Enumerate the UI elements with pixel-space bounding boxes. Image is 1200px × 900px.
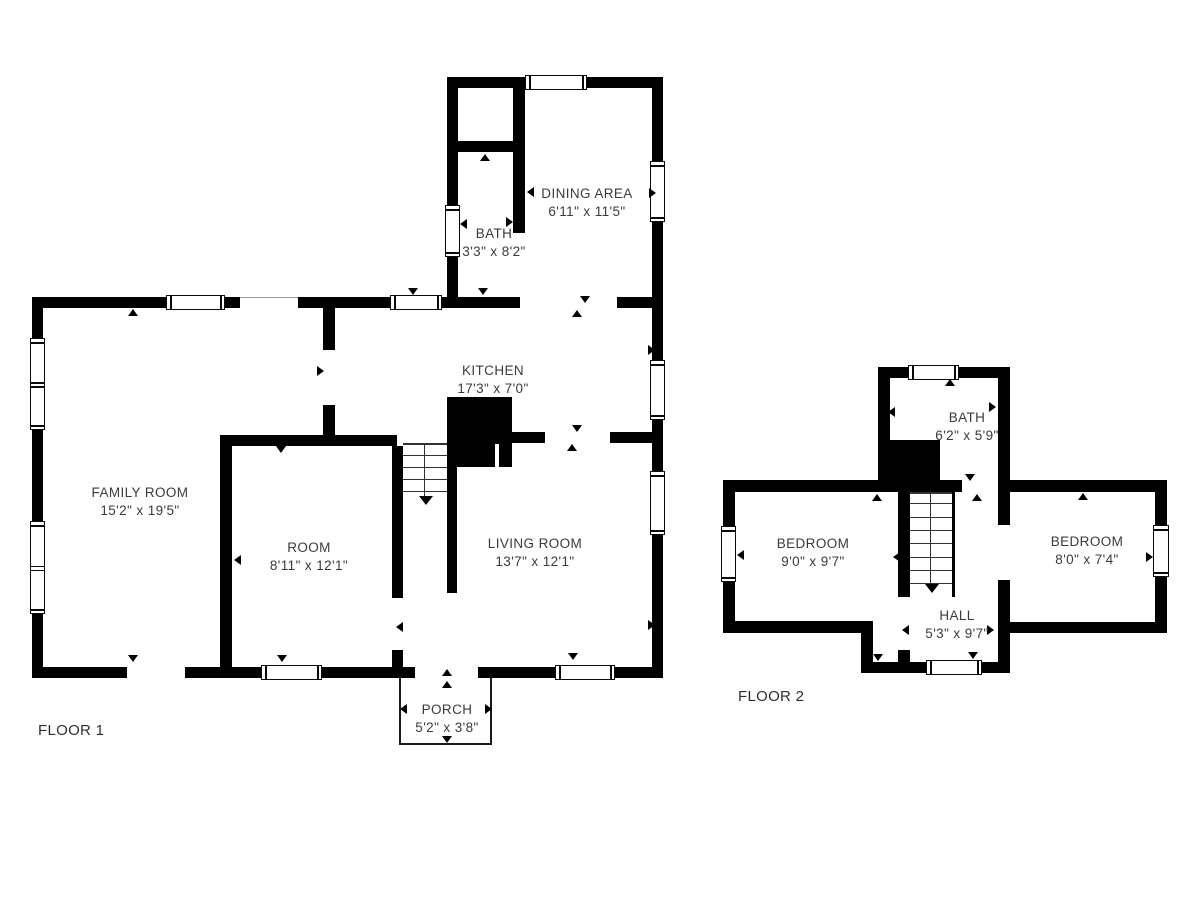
- room-dimensions: 3'3" x 8'2": [462, 243, 525, 261]
- door-direction-arrow: [396, 622, 403, 632]
- wall: [220, 446, 232, 667]
- window-mullion: [651, 415, 664, 417]
- window-mullion: [31, 525, 44, 527]
- room-label-bedroom-right: BEDROOM8'0" x 7'4": [1051, 533, 1124, 569]
- wall: [499, 444, 512, 467]
- window: [721, 526, 736, 582]
- window-mullion: [31, 566, 44, 568]
- room-name: KITCHEN: [462, 363, 524, 378]
- window-mullion: [31, 609, 44, 611]
- window-mullion: [930, 661, 932, 674]
- window-mullion: [977, 661, 979, 674]
- door-direction-arrow: [925, 584, 939, 593]
- window: [525, 75, 587, 90]
- window-mullion: [722, 530, 735, 532]
- door-direction-arrow: [649, 188, 656, 198]
- wall: [861, 662, 928, 673]
- room-name: BATH: [476, 226, 513, 241]
- door-direction-arrow: [893, 552, 900, 562]
- wall: [998, 480, 1167, 492]
- door-direction-arrow: [568, 653, 578, 660]
- door-direction-arrow: [872, 494, 882, 501]
- door-direction-arrow: [128, 655, 138, 662]
- wall: [1010, 622, 1167, 633]
- door-direction-arrow: [965, 474, 975, 481]
- room-name: BEDROOM: [1051, 534, 1124, 549]
- room-dimensions: 8'11" x 12'1": [270, 557, 348, 575]
- door-direction-arrow: [572, 310, 582, 317]
- room-label-living-room: LIVING ROOM13'7" x 12'1": [488, 535, 582, 571]
- wall: [723, 621, 873, 633]
- window: [650, 471, 665, 535]
- door-direction-arrow: [648, 345, 655, 355]
- window-mullion: [265, 666, 267, 679]
- wall: [458, 141, 513, 152]
- window-mullion: [722, 577, 735, 579]
- window: [390, 295, 442, 310]
- door-direction-arrow: [968, 652, 978, 659]
- window: [926, 660, 982, 675]
- window-mullion: [651, 165, 664, 167]
- wall: [512, 432, 545, 443]
- door-direction-arrow: [442, 681, 452, 688]
- door-direction-arrow: [902, 625, 909, 635]
- window-mullion: [317, 666, 319, 679]
- window-mullion: [651, 530, 664, 532]
- door-direction-arrow: [419, 496, 433, 505]
- window-mullion: [912, 366, 914, 379]
- wall: [392, 446, 403, 598]
- door-direction-arrow: [737, 550, 744, 560]
- window-mullion: [437, 296, 439, 309]
- window-mullion: [1154, 529, 1168, 531]
- opening-threshold: [240, 297, 298, 298]
- wall: [320, 667, 415, 678]
- wall: [723, 480, 962, 492]
- floor2-title: FLOOR 2: [738, 688, 804, 705]
- wall: [185, 667, 263, 678]
- door-direction-arrow: [567, 444, 577, 451]
- wall: [323, 308, 335, 350]
- window-mullion: [651, 217, 664, 219]
- room-dimensions: 13'7" x 12'1": [488, 553, 582, 571]
- window-mullion: [446, 252, 459, 254]
- room-name: HALL: [939, 608, 974, 623]
- room-dimensions: 5'2" x 3'8": [415, 719, 478, 737]
- wall: [447, 397, 512, 444]
- door-direction-arrow: [580, 296, 590, 303]
- wall: [447, 444, 457, 593]
- window-mullion: [31, 570, 44, 572]
- wall: [32, 297, 168, 308]
- window-mullion: [31, 342, 44, 344]
- window-mullion: [220, 296, 222, 309]
- room-label-bedroom-left: BEDROOM9'0" x 9'7": [777, 535, 850, 571]
- window-mullion: [559, 666, 561, 679]
- floor-plan-canvas: FLOOR 1 FLOOR 2 FAMILY ROOM15'2" x 19'5"…: [0, 0, 1200, 900]
- door-direction-arrow: [400, 704, 407, 714]
- wall: [898, 492, 910, 597]
- room-dimensions: 9'0" x 9'7": [777, 553, 850, 571]
- staircase-floor1-tread: [424, 443, 425, 496]
- room-label-kitchen: KITCHEN17'3" x 7'0": [457, 362, 528, 398]
- room-dimensions: 5'3" x 9'7": [925, 625, 988, 643]
- room-name: DINING AREA: [541, 186, 632, 201]
- wall: [617, 297, 663, 308]
- wall: [952, 492, 955, 597]
- door-direction-arrow: [276, 446, 286, 453]
- floor1-title: FLOOR 1: [38, 722, 104, 739]
- room-dimensions: 8'0" x 7'4": [1051, 551, 1124, 569]
- wall: [998, 580, 1010, 673]
- room-label-family-room: FAMILY ROOM15'2" x 19'5": [92, 484, 189, 520]
- window-mullion: [529, 76, 531, 89]
- window-mullion: [954, 366, 956, 379]
- wall: [220, 435, 397, 446]
- door-direction-arrow: [648, 620, 655, 630]
- wall: [32, 667, 127, 678]
- wall: [478, 667, 557, 678]
- window: [908, 365, 959, 380]
- door-direction-arrow: [873, 654, 883, 661]
- wall: [323, 405, 335, 437]
- room-dimensions: 17'3" x 7'0": [457, 380, 528, 398]
- door-direction-arrow: [442, 736, 452, 743]
- door-direction-arrow: [478, 288, 488, 295]
- door-direction-arrow: [945, 379, 955, 386]
- window-mullion: [651, 475, 664, 477]
- door-direction-arrow: [527, 187, 534, 197]
- room-name: BATH: [949, 410, 986, 425]
- wall: [223, 297, 240, 308]
- door-direction-arrow: [234, 555, 241, 565]
- room-dimensions: 6'2" x 5'9": [935, 427, 998, 445]
- window-mullion: [651, 364, 664, 366]
- window: [555, 665, 615, 680]
- wall: [298, 297, 392, 308]
- door-direction-arrow: [572, 425, 582, 432]
- staircase-floor2-tread: [910, 583, 952, 584]
- room-name: PORCH: [422, 702, 473, 717]
- door-direction-arrow: [1146, 552, 1153, 562]
- window-mullion: [31, 386, 44, 388]
- wall: [998, 492, 1010, 525]
- window-mullion: [170, 296, 172, 309]
- window: [166, 295, 225, 310]
- window-mullion: [31, 382, 44, 384]
- door-direction-arrow: [128, 309, 138, 316]
- window-mullion: [582, 76, 584, 89]
- window: [445, 205, 460, 257]
- door-direction-arrow: [442, 669, 452, 676]
- wall: [440, 297, 520, 308]
- room-label-room: ROOM8'11" x 12'1": [270, 539, 348, 575]
- room-label-dining-area: DINING AREA6'11" x 11'5": [541, 185, 632, 221]
- room-dimensions: 15'2" x 19'5": [92, 502, 189, 520]
- room-label-bath-floor2: BATH6'2" x 5'9": [935, 409, 998, 445]
- room-label-bath-floor1: BATH3'3" x 8'2": [462, 225, 525, 261]
- wall: [613, 667, 663, 678]
- room-label-hall: HALL5'3" x 9'7": [925, 607, 988, 643]
- window-mullion: [1154, 572, 1168, 574]
- window-mullion: [610, 666, 612, 679]
- room-label-porch: PORCH5'2" x 3'8": [415, 701, 478, 737]
- window: [650, 360, 665, 420]
- room-name: LIVING ROOM: [488, 536, 582, 551]
- window: [30, 521, 45, 614]
- wall: [455, 444, 495, 467]
- window: [261, 665, 322, 680]
- wall: [998, 367, 1010, 492]
- room-name: ROOM: [287, 540, 331, 555]
- room-name: BEDROOM: [777, 536, 850, 551]
- window-mullion: [394, 296, 396, 309]
- room-dimensions: 6'11" x 11'5": [541, 203, 632, 221]
- window: [30, 338, 45, 430]
- window: [1153, 525, 1169, 577]
- door-direction-arrow: [972, 494, 982, 501]
- wall: [513, 88, 525, 233]
- staircase-floor2-tread: [930, 492, 931, 583]
- door-direction-arrow: [408, 288, 418, 295]
- wall: [610, 432, 653, 443]
- wall: [447, 88, 458, 297]
- door-direction-arrow: [277, 655, 287, 662]
- door-direction-arrow: [1078, 493, 1088, 500]
- wall: [392, 650, 403, 667]
- door-direction-arrow: [317, 366, 324, 376]
- door-direction-arrow: [485, 704, 492, 714]
- door-direction-arrow: [480, 154, 490, 161]
- door-direction-arrow: [888, 407, 895, 417]
- window-mullion: [31, 425, 44, 427]
- wall: [898, 650, 910, 672]
- window-mullion: [446, 209, 459, 211]
- room-name: FAMILY ROOM: [92, 485, 189, 500]
